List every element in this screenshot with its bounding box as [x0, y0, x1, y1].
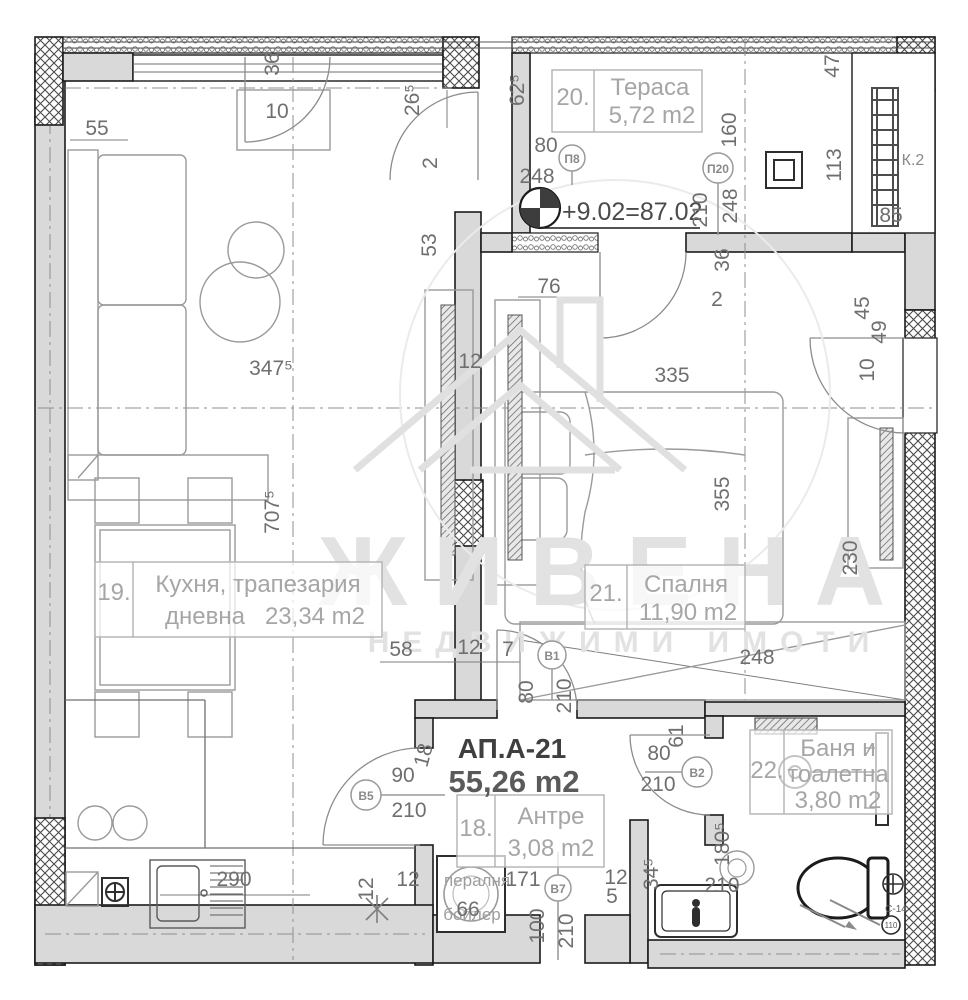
- drain-diameter: 110: [885, 921, 898, 930]
- kitchen-area: 23,34 m2: [265, 603, 365, 630]
- dim-terrace-47: 47: [821, 54, 844, 77]
- dim-terrace-113: 113: [823, 148, 846, 181]
- dim-kitchen-76: 76: [537, 275, 560, 298]
- dim-p20-height: 248: [719, 188, 742, 223]
- vent-box: [102, 878, 128, 906]
- entry-jamb-hatch: [443, 37, 479, 88]
- dim-kitchen-58: 58: [389, 638, 412, 661]
- dim-hall-12a: 12: [396, 868, 419, 891]
- dim-hall-66: 66: [456, 898, 479, 921]
- room-label-hall: 18. Антре 3,08 m2: [457, 795, 604, 867]
- bath-number: 22.: [750, 757, 783, 784]
- level-mark-value: +9.02=87.02: [562, 198, 702, 226]
- dim-kitchen-7: 7: [502, 638, 514, 661]
- terrace-area: 5,72 m2: [609, 102, 696, 129]
- dim-entry-door-2: 2: [419, 157, 442, 169]
- side-table-small: [228, 222, 284, 278]
- dim-bedroom-355: 355: [711, 476, 734, 511]
- dim-p8-width: 80: [534, 134, 557, 157]
- kitchen-number: 19.: [97, 579, 130, 606]
- apartment-area: 55,26 m2: [449, 764, 580, 799]
- hall-east-wall-lower: [630, 820, 648, 963]
- hall-name: Антре: [518, 803, 585, 830]
- dim-tl-55: 55: [85, 117, 108, 140]
- dim-b5-width: 90: [391, 764, 414, 787]
- marker-p8: П8: [564, 152, 580, 166]
- dim-bedroom-248: 248: [739, 646, 774, 669]
- dim-b2-height: 210: [640, 773, 675, 796]
- shaft-k2-label: К.2: [902, 152, 925, 169]
- terrace-parapet-left: [512, 233, 598, 252]
- left-top-corner-hatch: [35, 37, 63, 125]
- dim-bedroom-335: 335: [654, 364, 689, 387]
- cooktop-burner-2: [113, 806, 147, 840]
- terrace-door-arc: [600, 252, 686, 338]
- kitchen-window: [133, 55, 443, 81]
- right-wall-door-opening: [903, 338, 937, 433]
- dim-kitchen-290: 290: [216, 868, 251, 891]
- dim-terrace-160: 160: [718, 112, 741, 147]
- top-lintel: [63, 53, 133, 81]
- bath-name-2: тоалетна: [787, 761, 889, 788]
- dim-bedroom-45: 45: [851, 296, 874, 319]
- fridge-diagonal: [66, 872, 98, 906]
- cooktop-burner-1: [78, 806, 112, 840]
- watermark-subtitle: НЕДВИЖИМИ ИМОТИ: [368, 626, 883, 659]
- room-label-bath: 22. Баня и тоалетна 3,80 m2: [750, 730, 892, 814]
- shaft-bottom-wall: [852, 233, 905, 252]
- bedroom-name: Спалня: [644, 571, 728, 598]
- hall-number: 18.: [459, 815, 492, 842]
- hall-top-wall-right: [577, 700, 705, 718]
- bath-name-1: Баня и: [800, 735, 875, 762]
- dim-tl-53: 53: [418, 233, 441, 256]
- toilet: [798, 858, 888, 930]
- marker-b7: B7: [550, 882, 566, 896]
- sofa: [68, 150, 268, 500]
- dim-b7-height: 210: [555, 913, 578, 948]
- dim-b2-width: 80: [647, 742, 670, 765]
- terrace-number: 20.: [556, 84, 589, 111]
- dim-bedroom-230: 230: [839, 540, 862, 575]
- dim-b7-width: 100: [526, 908, 549, 943]
- marker-p20: П20: [707, 162, 729, 176]
- dim-b1-height: 210: [553, 678, 576, 713]
- dim-kitchen-7075: 707⁵: [261, 490, 284, 534]
- dim-bedroom-door-2: 2: [711, 288, 723, 311]
- central-wall-arm: [481, 233, 512, 252]
- dim-p20-width: 210: [689, 192, 712, 227]
- bath-top-wall: [705, 702, 905, 716]
- level-marker: +9.02=87.02: [520, 188, 702, 228]
- terrace-name: Тераса: [611, 74, 690, 101]
- dim-terrace-36: 36: [711, 248, 734, 271]
- terrace-grille: [766, 152, 802, 188]
- bottom-wall-hall-right: [585, 915, 630, 963]
- terrace-top-insulation: [512, 37, 935, 53]
- kitchen-name-2: дневна: [165, 603, 246, 630]
- floor-plan-svg: ЖИВЕНА НЕДВИЖИМИ ИМОТИ 20. Тераса 5,72 m…: [0, 0, 968, 1000]
- marker-b5: B5: [358, 789, 374, 803]
- dim-bedroom-10: 10: [856, 358, 879, 381]
- drain-code: С-14: [885, 904, 907, 915]
- dim-bath-5: 5: [606, 885, 618, 908]
- kitchen-counter: [65, 700, 415, 848]
- dim-kitchen-12: 12: [457, 636, 480, 659]
- side-table-large: [200, 262, 280, 342]
- dim-tl-36: 36: [261, 52, 284, 75]
- dim-hall-171: 171: [505, 868, 540, 891]
- dim-b1-width: 80: [515, 680, 538, 703]
- kitchen-name-1: Кухня, трапезария: [155, 571, 360, 598]
- dim-bath-345: 34⁵: [640, 858, 663, 890]
- dim-tl-10: 10: [265, 100, 288, 123]
- marker-b1: B1: [544, 649, 560, 663]
- apartment-code: АП.А-21: [458, 733, 566, 764]
- dim-bedroom-49: 49: [868, 320, 891, 343]
- dim-b5-height: 210: [391, 799, 426, 822]
- bath-area: 3,80 m2: [795, 787, 882, 814]
- dim-terrace-85: 85: [879, 204, 902, 227]
- dim-radiator-12: 12: [458, 350, 481, 373]
- dim-bath-210: 210: [704, 874, 739, 897]
- dim-hall-12b: 12: [355, 877, 378, 900]
- dim-kitchen-3475: 347⁵: [249, 357, 293, 380]
- room-label-bedroom: 21. Спалня 11,90 m2: [585, 565, 745, 629]
- dim-tl-625: 62⁵: [506, 74, 529, 106]
- washer-label: пералня: [444, 871, 510, 890]
- dim-bath-1805: 180⁵: [711, 822, 734, 866]
- hall-top-wall-left: [415, 700, 497, 718]
- marker-b2: B2: [689, 766, 705, 780]
- bedroom-right-door-arc: [810, 338, 905, 433]
- dim-tl-265: 26⁵: [401, 84, 424, 116]
- top-insulation-band: [63, 37, 443, 53]
- dim-p8-height: 248: [519, 165, 554, 188]
- bedroom-number: 21.: [589, 580, 622, 607]
- room-label-terrace: 20. Тераса 5,72 m2: [552, 70, 702, 132]
- floor-plan-page: ЖИВЕНА НЕДВИЖИМИ ИМОТИ 20. Тераса 5,72 m…: [0, 0, 968, 1000]
- hall-area: 3,08 m2: [508, 835, 595, 862]
- bedroom-area: 11,90 m2: [639, 599, 737, 626]
- room-label-kitchen: 19. Кухня, трапезария дневна 23,34 m2: [95, 562, 382, 637]
